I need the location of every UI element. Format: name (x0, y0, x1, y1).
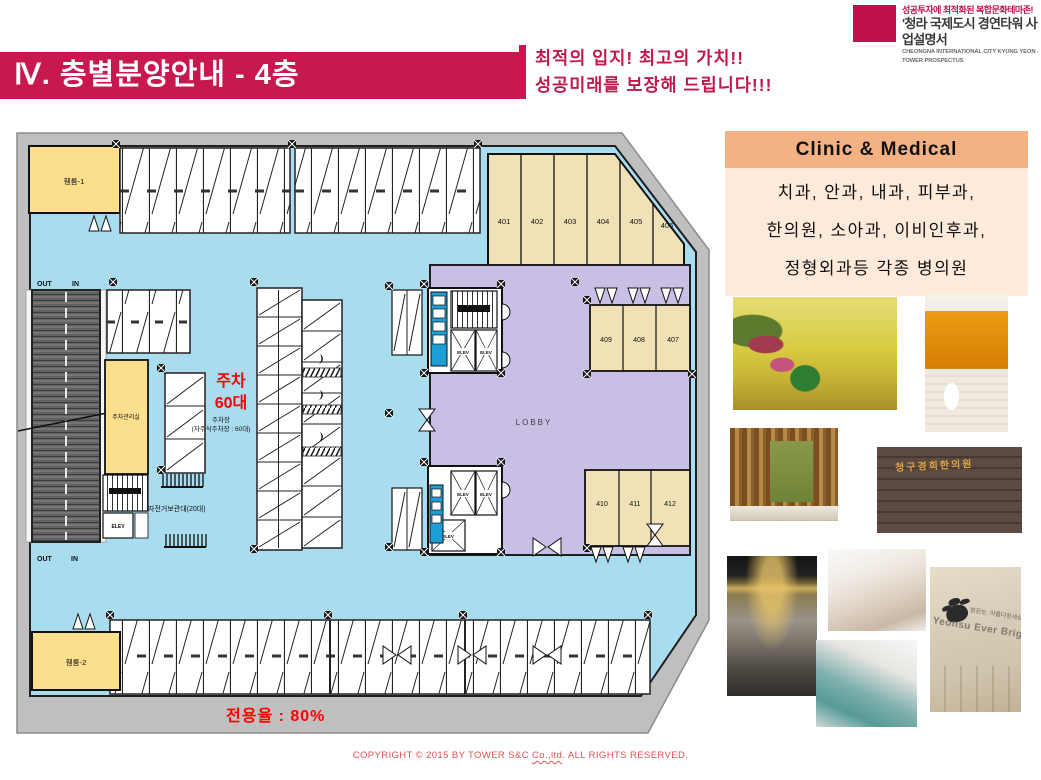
slogan-line-1: 최적의 입지! 최고의 가치!! (535, 45, 875, 72)
parking-sub-line2: (자주식주차장 : 60대) (192, 424, 251, 433)
copyright-post: . ALL RIGHTS RESERVED. (562, 750, 688, 761)
photo-dental-consult (816, 640, 917, 727)
parking-big-line1: 주차 (216, 372, 246, 390)
elevator-label: ELEV (480, 350, 492, 355)
company-logo: 성공투자에 최적화된 복합문화테마존! '청라 국제도시 경연타워 사업설명서 … (853, 5, 1039, 66)
parking-column-b (302, 300, 342, 548)
slogan-line-2: 성공미래를 보장해 드립니다!!! (535, 72, 875, 99)
parking-row-bottom (110, 620, 650, 694)
parking-pair-right-bottom (392, 488, 422, 550)
fan-room-2-label: 휀룸-2 (66, 658, 86, 667)
clinic-panel-header: Clinic & Medical (725, 131, 1028, 168)
photo-clinic-corridor-wood (730, 428, 838, 521)
parking-big-line2: 60대 (215, 394, 248, 412)
ramp-out-label: OUT (37, 281, 53, 288)
car-ramp: OUT IN OUT IN (18, 281, 112, 563)
photo-ear-exam (828, 549, 926, 631)
unit-406-label: 406 (661, 221, 674, 230)
unit-412-label: 412 (664, 501, 676, 508)
photo-clinic-brick-sign: 청구경희한의원 (877, 447, 1022, 533)
unit-402-label: 402 (531, 217, 544, 226)
elevator-label: ELEV (457, 350, 469, 355)
unit-409-label: 409 (600, 337, 612, 344)
parking-sub-line1: 주차장 (212, 415, 230, 424)
logo-tagline: 성공투자에 최적화된 복합문화테마존! (902, 5, 1039, 16)
clinic-line-3: 정형외과등 각종 병의원 (725, 250, 1028, 288)
photo-clinic-reception-orange (925, 295, 1008, 432)
clinic-panel-body: 치과, 안과, 내과, 피부과, 한의원, 소아과, 이비인후과, 정형외과등 … (725, 168, 1028, 296)
copyright-line: COPYRIGHT © 2015 BY TOWER S&C Co.,ltd. A… (0, 750, 1041, 761)
lobby-label: LOBBY (516, 418, 553, 427)
slogan-block: 최적의 입지! 최고의 가치!! 성공미래를 보장해 드립니다!!! (519, 45, 875, 99)
clinic-panel: Clinic & Medical 치과, 안과, 내과, 피부과, 한의원, 소… (725, 131, 1028, 296)
unit-404-label: 404 (597, 217, 610, 226)
logo-name: '청라 국제도시 경연타워 사업설명서 (902, 16, 1039, 48)
unit-row-top: 401 402 403 404 405 406 (488, 154, 684, 275)
exclusive-rate-label: 전용율 : 80% (226, 707, 325, 725)
clinic-panel-title: Clinic & Medical (796, 139, 958, 160)
photo-waiting-room (727, 556, 817, 696)
floor-plan: 휀룸-1 401 402 403 404 405 406 LOBBY (15, 128, 710, 735)
logo-mark (853, 5, 896, 42)
bike-rack-label: 자전거보관대(20대) (148, 504, 206, 513)
ramp-out-label-bottom: OUT (37, 556, 53, 563)
copyright-pre: COPYRIGHT © 2015 BY TOWER S&C (353, 750, 532, 761)
unit-405-label: 405 (630, 217, 643, 226)
clinic-line-2: 한의원, 소아과, 이비인후과, (725, 212, 1028, 250)
copyright-company: Co.,ltd (532, 750, 562, 761)
parking-pair-right-top (392, 290, 422, 355)
stairs-left: ELEV (103, 475, 148, 538)
fan-room-1-label: 휀룸-1 (64, 177, 84, 186)
elevator-core-upper: ELEV ELEV (428, 288, 510, 373)
yeonsu-sign-korean: 밝은눈, 아름다운세상 (970, 605, 1021, 622)
brick-sign-text: 청구경희한의원 (895, 455, 974, 474)
parking-office-label: 주차관리실 (112, 413, 140, 421)
elevator-label: ELEV (480, 492, 492, 497)
photo-collage: 청구경희한의원 밝은눈, 아름다운세상 Yeonsu Ever Bright E… (715, 285, 1041, 735)
slide: Ⅳ. 층별분양안내 - 4층 최적의 입지! 최고의 가치!! 성공미래를 보장… (0, 0, 1041, 780)
ramp-in-label-bottom: IN (71, 556, 78, 563)
elevator-core-lower: ELEV ELEV ELEV (428, 466, 510, 554)
elevator-label: ELEV (111, 524, 125, 530)
logo-name-en: CHEONGNA INTERNATIONAL CITY KYUNG YEON -… (902, 48, 1039, 66)
unit-407-label: 407 (667, 337, 679, 344)
unit-410-label: 410 (596, 501, 608, 508)
parking-column-a (257, 288, 302, 550)
clinic-line-1: 치과, 안과, 내과, 피부과, (725, 174, 1028, 212)
title-bar: Ⅳ. 층별분양안내 - 4층 (0, 52, 520, 99)
parking-column-2 (165, 373, 205, 473)
photo-clinic-reception-flowers (733, 297, 897, 410)
unit-403-label: 403 (564, 217, 577, 226)
unit-411-label: 411 (629, 501, 640, 508)
unit-408-label: 408 (633, 337, 645, 344)
unit-401-label: 401 (498, 217, 511, 226)
page-title: Ⅳ. 층별분양안내 - 4층 (0, 52, 520, 99)
parking-group-mid (107, 290, 190, 353)
parking-office: 주차관리실 (105, 360, 148, 474)
ramp-in-label: IN (72, 281, 79, 288)
elevator-label: ELEV (457, 492, 469, 497)
photo-yeonsu-stone-sign: 밝은눈, 아름다운세상 Yeonsu Ever Bright Eye (930, 567, 1021, 712)
elevator-label: ELEV (442, 534, 454, 539)
